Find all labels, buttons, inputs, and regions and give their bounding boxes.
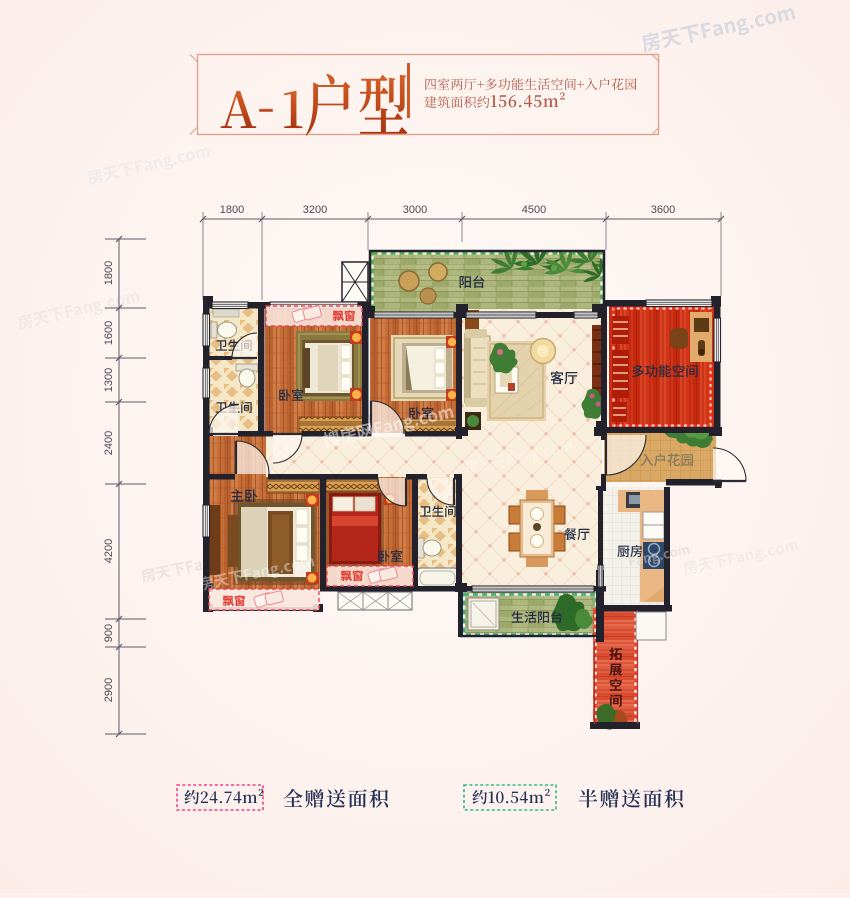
svg-text:900: 900 (103, 624, 115, 642)
svg-text:4200: 4200 (103, 539, 115, 563)
svg-text:2400: 2400 (103, 431, 115, 455)
svg-text:1800: 1800 (220, 204, 244, 216)
svg-text:1800: 1800 (103, 261, 115, 285)
svg-text:2900: 2900 (103, 678, 115, 702)
svg-text:1600: 1600 (103, 321, 115, 345)
svg-text:3000: 3000 (403, 204, 427, 216)
svg-text:4500: 4500 (522, 204, 546, 216)
svg-text:3200: 3200 (303, 204, 327, 216)
svg-text:1300: 1300 (103, 368, 115, 392)
svg-text:3600: 3600 (651, 204, 675, 216)
